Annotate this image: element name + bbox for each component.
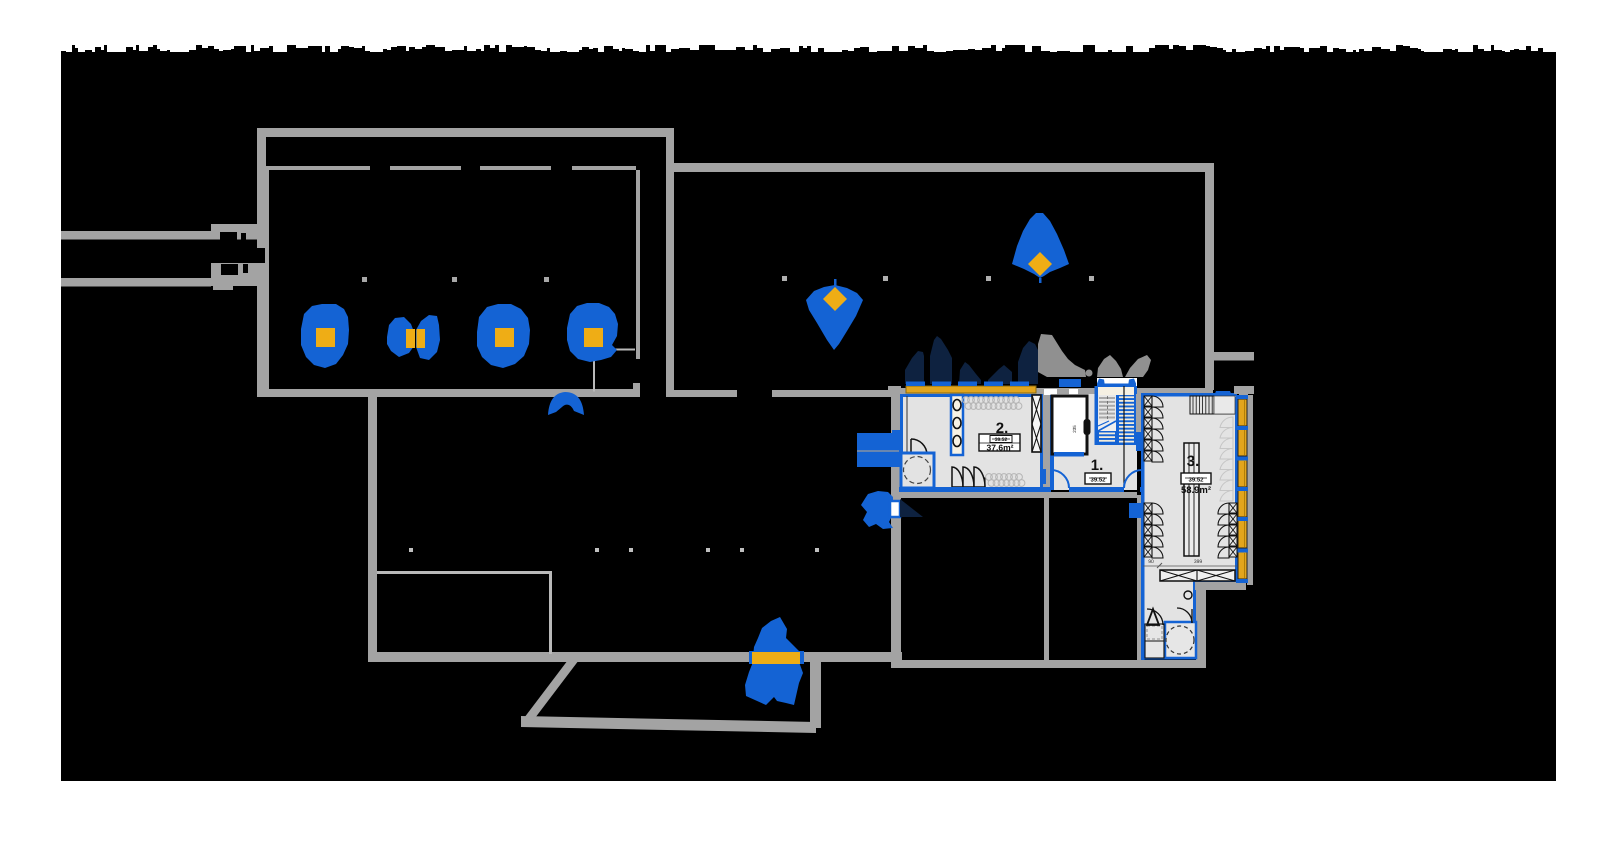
- svg-text:399: 399: [1194, 559, 1203, 565]
- svg-text:1.: 1.: [1091, 457, 1104, 474]
- svg-text:235: 235: [1072, 425, 1077, 433]
- svg-text:39.52: 39.52: [1188, 477, 1204, 484]
- svg-text:3.: 3.: [1187, 453, 1200, 470]
- svg-text:39.52: 39.52: [1090, 477, 1106, 484]
- svg-text:37.6m²: 37.6m²: [987, 443, 1014, 453]
- svg-text:90: 90: [1148, 559, 1154, 565]
- svg-text:58.9m²: 58.9m²: [1181, 485, 1211, 496]
